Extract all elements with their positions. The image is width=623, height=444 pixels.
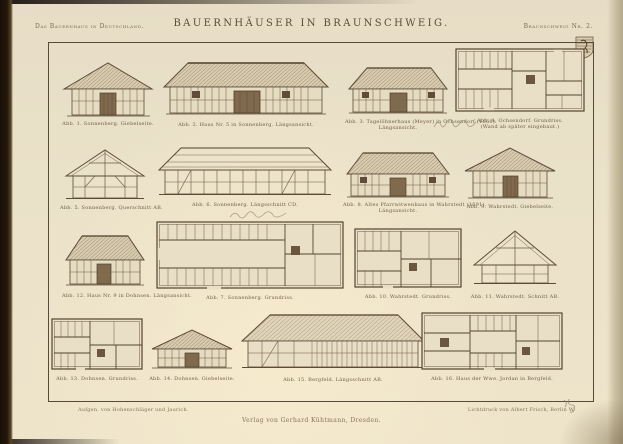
figure-abb-11: Abb. 11. Wahrstedt. Schnitt AB. [468,227,562,300]
pencil-scribble-abb3 [432,115,478,133]
abb8-long-elevation-drawing [345,148,451,199]
abb1-gable-elevation-drawing [62,61,154,118]
figure-caption: Abb. 2. Haus Nr. 5 in Sonnenberg. Längsa… [160,122,332,128]
figure-caption: Abb. 15. Bergfeld. Längsschnitt AB. [238,377,428,383]
abb14-gable-elevation-drawing [150,327,234,373]
abb4-floor-plan-drawing [454,47,586,115]
figure-abb-6: Abb. 6. Sonnenberg. Längsschnitt CD. [155,140,335,208]
figure-caption: Abb. 11. Wahrstedt. Schnitt AB. [468,294,562,300]
figure-abb-12: Abb. 12. Haus Nr. 9 in Dohnsen. Längsans… [62,226,148,299]
abb10-floor-plan-drawing [353,227,463,291]
figure-caption: Abb. 5. Sonnenberg. Querschnitt AB. [60,205,150,211]
figure-abb-2: Abb. 2. Haus Nr. 5 in Sonnenberg. Längsa… [160,55,332,128]
figure-caption: Abb. 12. Haus Nr. 9 in Dohnsen. Längsans… [62,293,148,299]
book-gutter-edge [0,0,13,444]
pencil-scribble-abb6 [228,209,288,221]
photo-edge-top [0,0,420,4]
figure-abb-10: Abb. 10. Wahrstedt. Grundriss. [351,227,465,300]
plate-photograph: Das Bauernhaus in Deutschland. BAUERNHÄU… [0,0,623,444]
figure-caption: Abb. 6. Sonnenberg. Längsschnitt CD. [155,202,335,208]
figure-caption: Abb. 9. Wahrstedt. Giebelseite. [461,204,559,210]
figure-abb-5: Abb. 5. Sonnenberg. Querschnitt AB. [60,146,150,211]
abb16-floor-plan-drawing [420,311,564,373]
abb5-cross-section-drawing [62,146,148,202]
figure-abb-13: Abb. 13. Dohnsen. Grundriss. [48,317,146,382]
abb6-long-section-drawing [157,140,333,199]
abb11-cross-section-drawing [470,227,560,291]
imprint-surveyors: Aufgen. von Hohenschläger und Jaurich. [78,407,189,413]
abb13-floor-plan-drawing [50,317,144,373]
figure-caption: Abb. 7. Sonnenberg. Grundriss. [153,295,347,301]
figure-abb-8: Abb. 8. Altes Pfarrwitwenhaus in Wahrste… [343,148,453,214]
figure-caption: Abb. 13. Dohnsen. Grundriss. [48,376,146,382]
abb15-long-section-drawing [240,307,426,374]
imprint-publisher: Verlag von Gerhard Kühtmann, Dresden. [0,417,623,424]
figure-caption: Abb. 1. Sonnenberg. Giebelseite. [58,121,158,127]
imprint-printer: Lichtdruck von Albert Frisch, Berlin W. [468,407,575,413]
abb3-long-elevation-drawing [347,62,449,116]
figure-abb-9: Abb. 9. Wahrstedt. Giebelseite. [461,145,559,210]
figure-abb-1: Abb. 1. Sonnenberg. Giebelseite. [58,61,158,127]
figure-caption-line2: Längsansicht. [343,208,453,214]
plate-number: Braunschweig Nr. 2. [524,23,593,30]
figure-abb-15: Abb. 15. Bergfeld. Längsschnitt AB. [238,307,428,383]
abb9-gable-elevation-drawing [463,145,557,201]
figure-caption: Abb. 14. Dohnsen. Giebelseite. [148,376,236,382]
abb2-long-elevation-drawing [162,55,330,119]
abb7-floor-plan-drawing [155,220,345,292]
figure-caption: Abb. 16. Haus der Wwe. Jordan in Bergfel… [418,376,566,382]
figure-caption: Abb. 10. Wahrstedt. Grundriss. [351,294,465,300]
photo-edge-bottom [0,439,120,444]
figure-abb-14: Abb. 14. Dohnsen. Giebelseite. [148,327,236,382]
page-edge-right [607,0,623,444]
figure-abb-7: Abb. 7. Sonnenberg. Grundriss. [153,220,347,301]
abb12-long-elevation-drawing [64,226,146,290]
figure-abb-16: Abb. 16. Haus der Wwe. Jordan in Bergfel… [418,311,566,382]
